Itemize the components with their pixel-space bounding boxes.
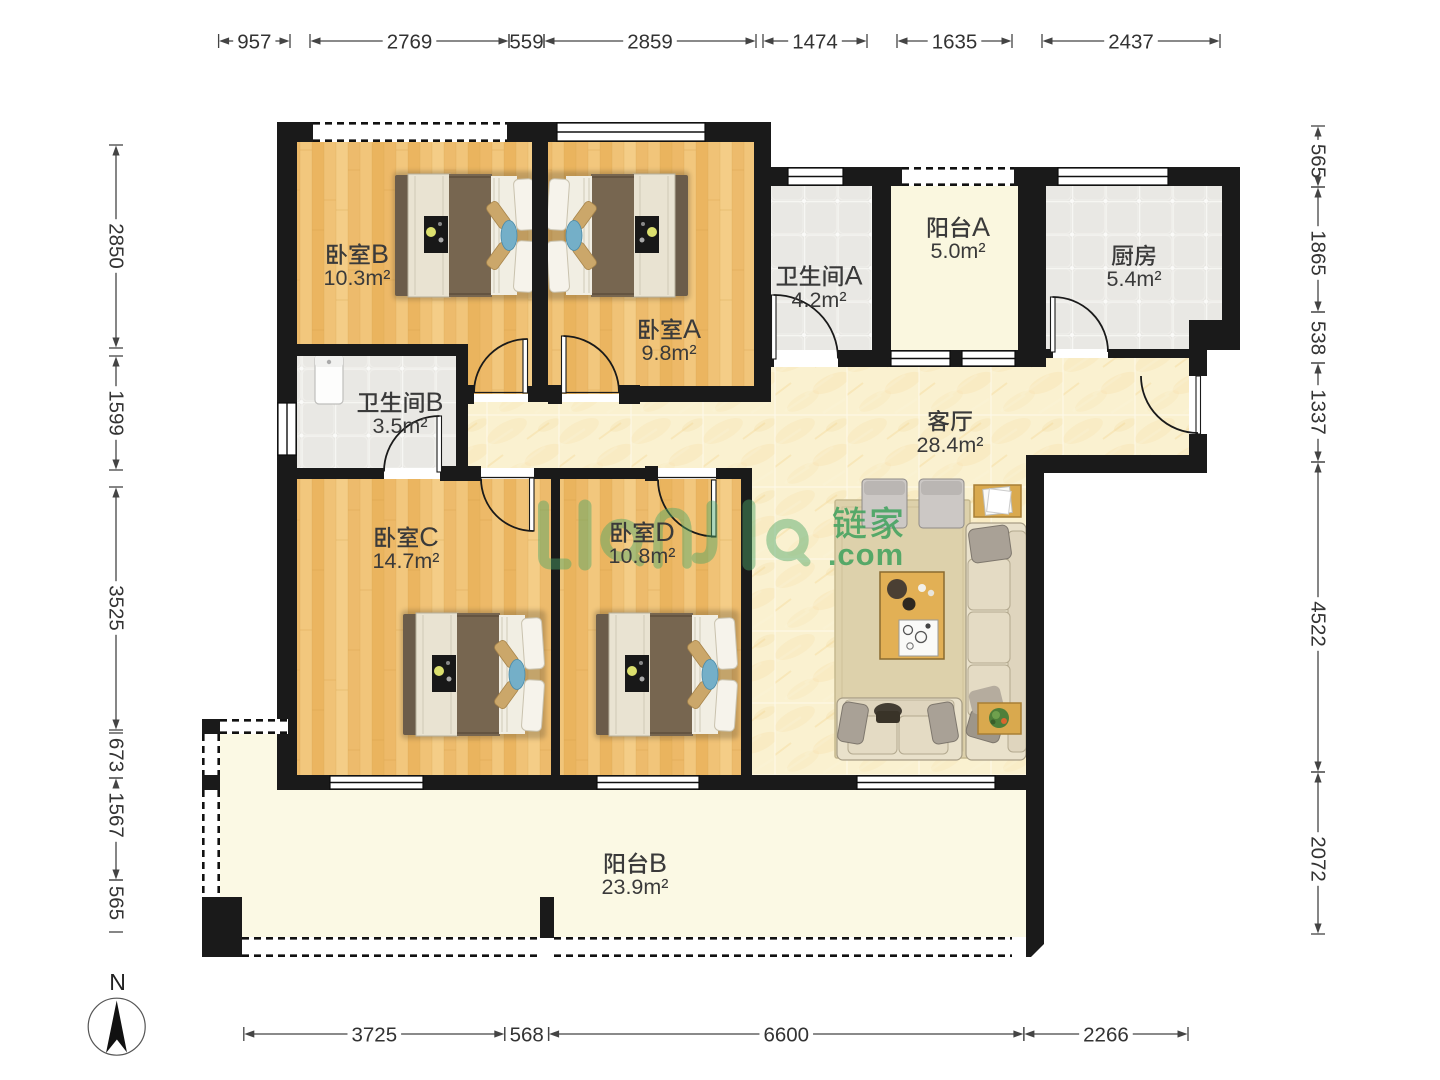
svg-text:1567: 1567 [105,792,128,838]
svg-text:B: B [425,387,443,417]
svg-text:23.9m²: 23.9m² [602,875,669,899]
svg-text:2769: 2769 [387,30,433,53]
svg-text:565: 565 [105,886,128,920]
svg-text:568: 568 [510,1023,544,1046]
svg-text:.com: .com [828,537,904,572]
svg-text:A: A [844,261,862,291]
svg-text:2859: 2859 [627,30,673,53]
svg-text:C: C [419,522,439,552]
svg-text:2266: 2266 [1083,1023,1129,1046]
svg-text:538: 538 [1307,321,1330,355]
svg-text:B: B [649,848,667,878]
svg-text:3725: 3725 [351,1023,397,1046]
svg-text:3.5m²: 3.5m² [373,414,428,438]
svg-text:3525: 3525 [105,585,128,631]
svg-text:10.3m²: 10.3m² [324,266,391,290]
svg-text:N: N [109,969,126,995]
svg-text:9.8m²: 9.8m² [642,341,697,365]
svg-text:A: A [683,314,701,344]
svg-text:6600: 6600 [763,1023,809,1046]
svg-text:5.4m²: 5.4m² [1107,267,1162,291]
svg-text:2072: 2072 [1307,836,1330,882]
svg-text:1865: 1865 [1307,230,1330,276]
svg-text:673: 673 [105,738,128,772]
svg-text:4.2m²: 4.2m² [792,288,847,312]
svg-text:A: A [972,212,990,242]
svg-text:1599: 1599 [105,390,128,436]
svg-text:28.4m²: 28.4m² [917,433,984,457]
svg-text:2437: 2437 [1108,30,1154,53]
svg-text:10.8m²: 10.8m² [609,544,676,568]
svg-text:5.0m²: 5.0m² [931,239,986,263]
svg-text:2850: 2850 [105,223,128,269]
svg-text:1337: 1337 [1307,389,1330,435]
svg-text:1635: 1635 [932,30,978,53]
svg-text:D: D [655,517,675,547]
svg-text:B: B [371,239,389,269]
svg-text:565: 565 [1307,144,1330,178]
svg-text:559: 559 [509,30,543,53]
svg-text:4522: 4522 [1307,601,1330,647]
svg-text:14.7m²: 14.7m² [373,549,440,573]
svg-text:957: 957 [237,30,271,53]
svg-text:1474: 1474 [792,30,838,53]
